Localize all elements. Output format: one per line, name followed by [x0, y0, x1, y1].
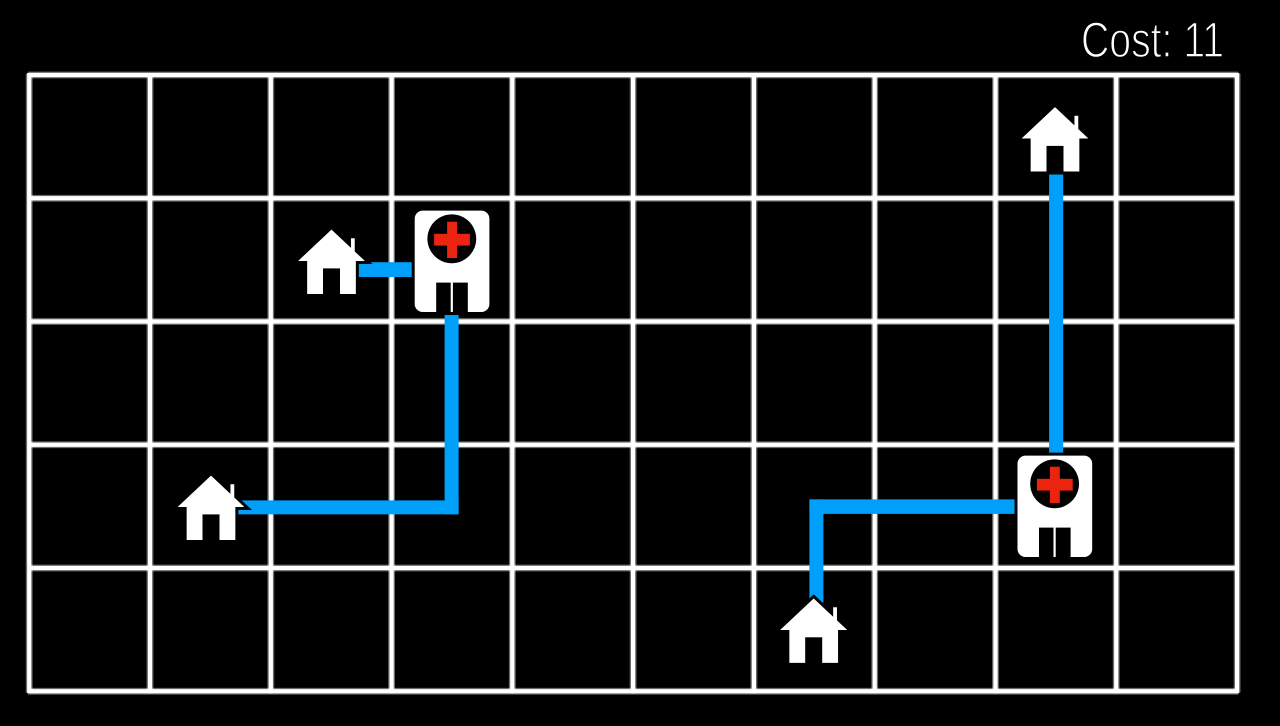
svg-text:Cost: 11: Cost: 11: [1081, 12, 1224, 68]
